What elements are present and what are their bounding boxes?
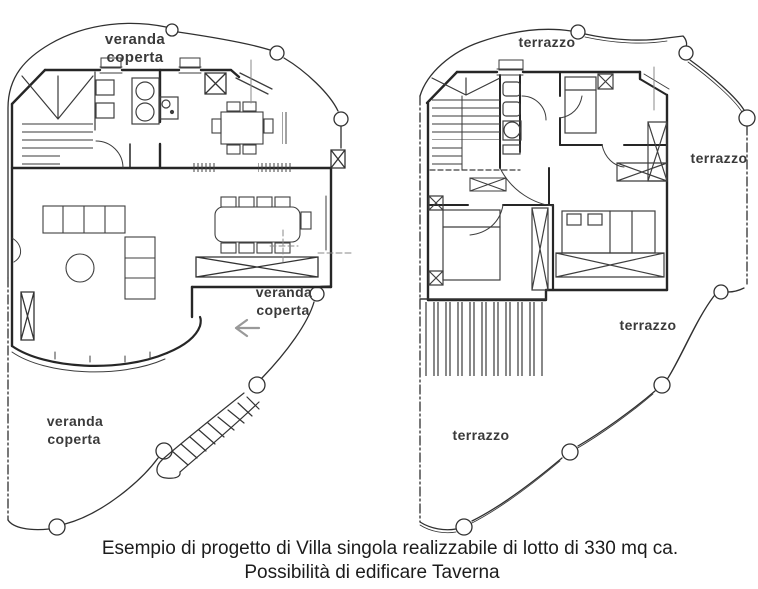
caption-line-2: Possibilità di edificare Taverna bbox=[244, 562, 500, 583]
bedroom-bottom-right bbox=[556, 211, 664, 277]
upper-floor-plan: terrazzo terrazzo terrazzo terrazzo bbox=[420, 25, 755, 535]
bed bbox=[562, 211, 655, 253]
wardrobe bbox=[617, 163, 667, 181]
veranda-coperta-label-entrance-line2: coperta bbox=[256, 302, 309, 318]
window-hatch bbox=[192, 112, 292, 172]
toilet bbox=[503, 82, 520, 96]
living-room-furniture bbox=[43, 206, 155, 299]
staircase bbox=[22, 72, 123, 168]
bedroom-bottom-left bbox=[429, 196, 548, 290]
caption-line-1: Esempio di progetto di Villa singola rea… bbox=[102, 538, 678, 559]
bed bbox=[565, 77, 596, 133]
floorplan-sheet: veranda coperta veranda coperta veranda … bbox=[0, 0, 758, 589]
wardrobe bbox=[532, 208, 548, 290]
breakfast-table bbox=[212, 102, 273, 154]
veranda-coperta-label-entrance-line1: veranda bbox=[256, 284, 313, 300]
washbasin bbox=[503, 121, 521, 140]
terrazzo-label-middle: terrazzo bbox=[620, 317, 677, 333]
wardrobe bbox=[556, 253, 664, 277]
terrazzo-label-bottom: terrazzo bbox=[453, 427, 510, 443]
dining-table bbox=[215, 197, 311, 253]
caption: Esempio di progetto di Villa singola rea… bbox=[102, 538, 678, 583]
wardrobe bbox=[648, 122, 667, 181]
entrance-arrow-icon bbox=[236, 320, 259, 336]
upper-staircase bbox=[432, 78, 500, 170]
veranda-coperta-label-top-line2: coperta bbox=[107, 49, 164, 66]
bed bbox=[443, 210, 500, 280]
external-stair bbox=[157, 393, 259, 478]
floorplan-drawing: veranda coperta veranda coperta veranda … bbox=[0, 0, 758, 589]
pergola-slats bbox=[420, 299, 546, 376]
boundary-columns bbox=[49, 24, 348, 535]
veranda-coperta-label-top-line1: veranda bbox=[105, 31, 166, 48]
veranda-coperta-label-bottom-line1: veranda bbox=[47, 413, 104, 429]
bidet bbox=[503, 102, 520, 116]
kitchen bbox=[96, 78, 178, 124]
veranda-coperta-label-bottom-line2: coperta bbox=[47, 431, 100, 447]
coffee-table bbox=[66, 254, 94, 282]
ground-floor-plan: veranda coperta veranda coperta veranda … bbox=[8, 23, 352, 535]
windows bbox=[12, 58, 326, 372]
terrazzo-label-top: terrazzo bbox=[519, 34, 576, 50]
hall-radiator bbox=[470, 178, 506, 191]
bathroom-fixtures bbox=[503, 82, 521, 154]
l-sofa bbox=[125, 237, 155, 299]
terrazzo-label-right: terrazzo bbox=[691, 150, 748, 166]
